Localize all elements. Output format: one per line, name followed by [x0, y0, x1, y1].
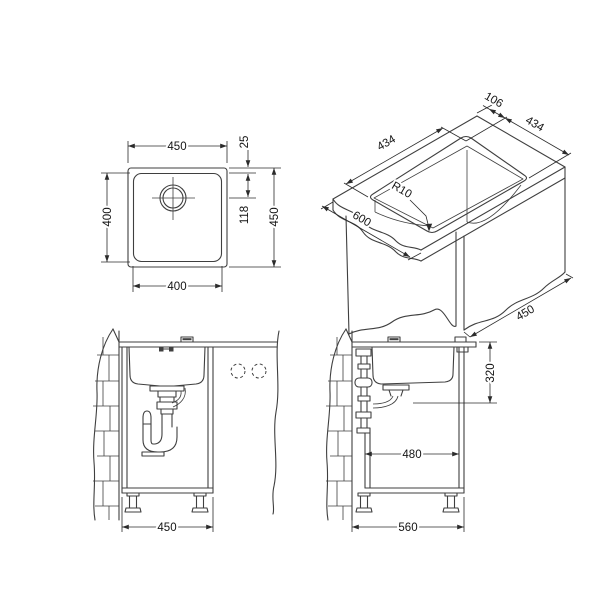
dim-top-width: 450: [128, 141, 227, 163]
dim-label-25: 25: [239, 136, 251, 149]
dim-label-r10: R10: [389, 180, 413, 201]
wall-section-left: [93, 329, 119, 520]
sink-bowl-edge: [134, 174, 222, 262]
dim-label-450-right: 450: [269, 207, 281, 226]
dim-label-450-iso: 450: [514, 303, 537, 323]
dim-side-depth-320: 320: [413, 342, 497, 403]
dim-label-434-left: 434: [375, 133, 398, 153]
dim-label-450-top: 450: [167, 141, 186, 153]
tap-hole-marker: [231, 364, 245, 378]
dim-side-inner-480: 480: [365, 449, 459, 461]
sink-technical-drawing: 450 400 400 25 118 450: [0, 0, 615, 615]
dim-front-width: 450: [122, 497, 213, 534]
break-edge-right: [273, 331, 279, 514]
dim-label-560: 560: [398, 522, 417, 534]
edge-clamp-top: [455, 337, 466, 342]
worktop-front: [119, 337, 277, 347]
wall-section-side: [326, 329, 352, 520]
panel-break-left: [349, 309, 456, 334]
technical-drawing-page: 450 400 400 25 118 450: [0, 0, 615, 615]
dim-label-320: 320: [485, 363, 497, 382]
dim-label-600: 600: [350, 209, 373, 229]
iso-view: 106 434 434 R10 600 450: [321, 90, 573, 337]
dim-label-434-right: 434: [523, 114, 546, 134]
cabinet-front: [122, 347, 213, 493]
dim-label-480: 480: [402, 449, 421, 461]
top-view: 450 400 400 25 118 450: [101, 136, 281, 293]
dim-bottom-width: 400: [133, 266, 222, 293]
dim-left-height: 400: [101, 173, 130, 262]
dim-right-stack: 25 118 450: [229, 136, 281, 267]
drain-trap-front: [142, 386, 185, 456]
drain-symbol: [152, 177, 195, 220]
dim-label-400-bottom: 400: [167, 281, 186, 293]
sink-basin-front: [129, 347, 205, 387]
dim-label-450-front: 450: [157, 522, 176, 534]
sink-basin-side: [372, 347, 454, 384]
tap-hole-marker: [252, 364, 266, 378]
front-view: 450: [93, 329, 279, 534]
drain-side: [373, 385, 409, 408]
panel-break-right: [464, 272, 565, 330]
sink-outer-rim: [128, 168, 227, 267]
side-view: 320 480 560: [326, 329, 497, 534]
cabinet-side: [365, 347, 464, 493]
adjustable-feet-front: [125, 493, 208, 512]
wall-plumbing-stack: [355, 349, 372, 433]
dim-label-118: 118: [239, 206, 251, 224]
worktop-slab: [333, 116, 565, 261]
dim-label-400-left: 400: [102, 207, 114, 226]
dim-iso: 106 434 434 R10 600 450: [321, 90, 573, 337]
adjustable-feet-side: [356, 493, 459, 512]
